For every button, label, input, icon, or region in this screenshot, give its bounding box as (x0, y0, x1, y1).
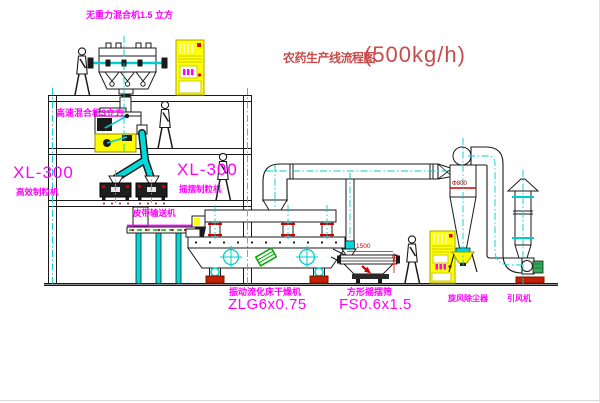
dim-sieve-height: 541 (390, 255, 397, 266)
dryer-feet (206, 268, 328, 283)
label-high-speed-mixer: 高速混合机3立方 (56, 109, 124, 118)
diagram-title-capacity: (500kg/h) (364, 44, 466, 66)
label-granulator-mid-name: 摇摆制粒机 (179, 185, 222, 194)
window-edge-bottom (0, 400, 600, 401)
label-granulator-left-model: XL-300 (13, 164, 74, 181)
exhaust-stack (508, 179, 538, 258)
cad-flow-diagram: 无重力混合机1.5 立方 农药生产线流程图 (500kg/h) 高速混合机3立方… (0, 0, 600, 403)
cyclone-outlet-duct (471, 147, 522, 273)
label-granulator-mid-model: XL-300 (177, 161, 238, 178)
control-cabinet-ground (430, 231, 455, 283)
floor-fixing-dots (103, 203, 165, 205)
fluid-bed-dryer-machine (186, 210, 345, 283)
label-sieve-model: FS0.6x1.5 (339, 297, 412, 312)
label-dryer-model: ZLG6x0.75 (228, 297, 307, 312)
label-belt-conveyor: 皮带输送机 (133, 209, 176, 218)
label-fan: 引风机 (507, 295, 531, 303)
label-cyclone: 旋风除尘器 (448, 295, 488, 303)
diagram-title: 农药生产线流程图 (283, 52, 375, 64)
person-figure-2 (158, 101, 173, 148)
person-figure-1 (75, 48, 90, 95)
gravity-mixer-machine (88, 43, 167, 114)
control-cabinet-top (176, 40, 204, 95)
ground-line (44, 283, 558, 285)
dim-sieve-length: 1500 (356, 244, 370, 251)
label-gravity-mixer: 无重力混合机1.5 立方 (86, 11, 173, 20)
exhaust-duct (263, 164, 452, 211)
person-figure-4 (405, 236, 420, 283)
dim-duct-diameter: Φ800 (452, 181, 467, 187)
label-granulator-left-name: 高效制粒机 (16, 188, 59, 197)
